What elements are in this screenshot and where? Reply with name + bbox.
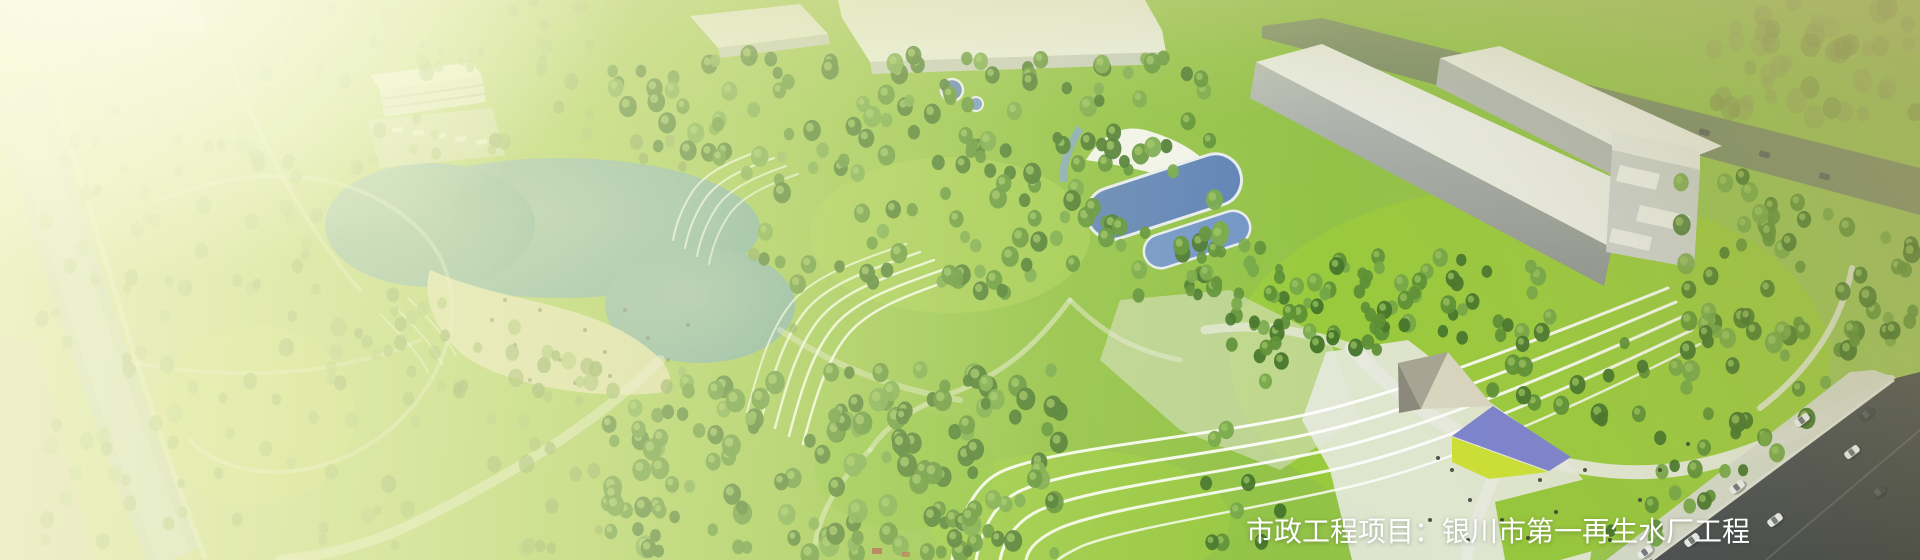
hero-banner: 市政工程项目：银川市第一再生水厂工程: [0, 0, 1920, 560]
project-caption: 市政工程项目：银川市第一再生水厂工程: [1246, 516, 1750, 548]
scene-svg: [0, 0, 1920, 560]
flat-building-roof: [838, 0, 1166, 62]
storage-tank: [179, 12, 207, 32]
